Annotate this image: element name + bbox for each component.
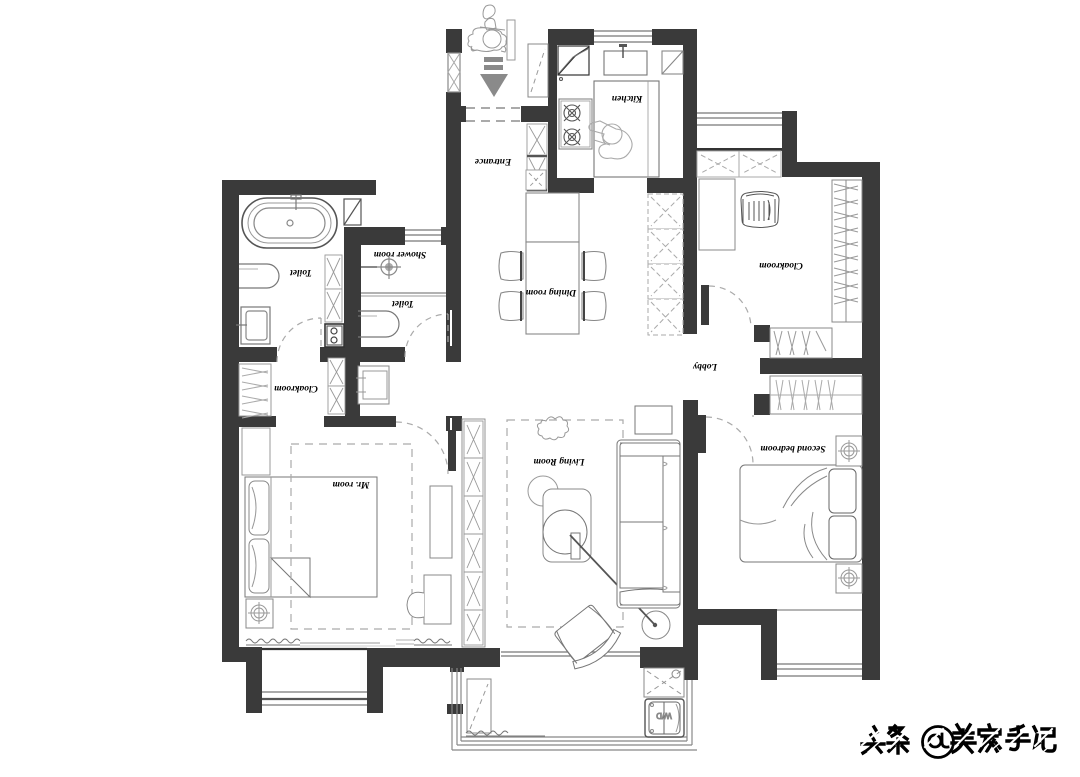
svg-text:Kitchen: Kitchen [612, 93, 644, 103]
svg-text:Living Room: Living Room [534, 456, 586, 466]
svg-text:W/D: W/D [656, 711, 672, 720]
svg-text:Lobby: Lobby [692, 361, 718, 371]
svg-text:Toilet: Toilet [290, 267, 312, 277]
svg-text:Toilet: Toilet [392, 298, 414, 308]
svg-text:Second bedroom: Second bedroom [760, 443, 825, 453]
svg-text:Cloakroom: Cloakroom [759, 260, 803, 270]
svg-text:Entrance: Entrance [474, 156, 512, 166]
svg-text:Dining room: Dining room [526, 287, 577, 297]
svg-text:Shower room: Shower room [374, 249, 427, 259]
svg-text:Mr. room: Mr. room [333, 479, 371, 489]
svg-text:Cloakroom: Cloakroom [274, 383, 318, 393]
